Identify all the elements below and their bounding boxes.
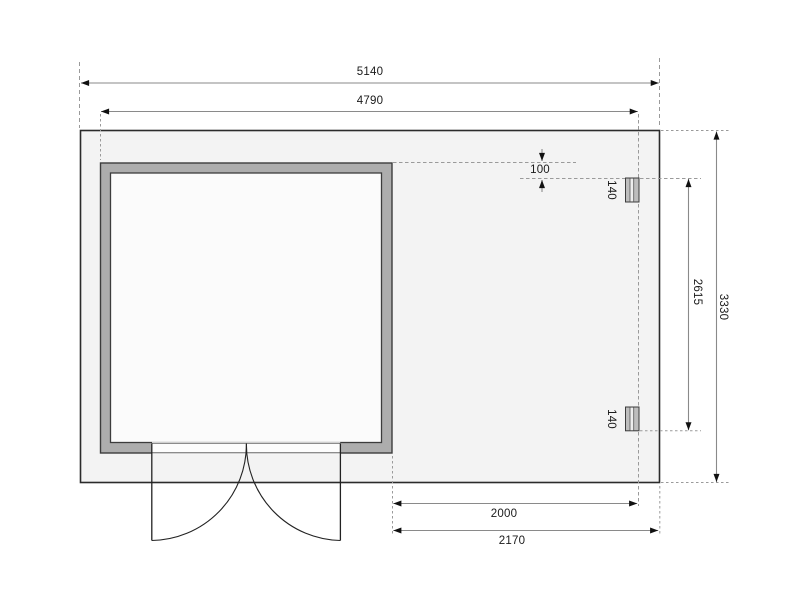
room-interior — [111, 173, 382, 443]
floor-plan-drawing — [0, 0, 800, 600]
dim-label-wall-post-offset: 100 — [530, 164, 550, 176]
cabin-room — [101, 163, 393, 454]
dim-label-post-bay-width: 2000 — [491, 508, 517, 520]
dim-label-annex-width: 2170 — [499, 535, 525, 547]
post-top-stripe — [630, 179, 634, 202]
dim-label-post-span: 2615 — [691, 279, 703, 305]
dim-label-total-width: 5140 — [357, 66, 383, 78]
dim-label-total-depth: 3330 — [717, 294, 729, 320]
post-bottom-stripe — [630, 408, 634, 431]
dim-label-house-width: 4790 — [357, 95, 383, 107]
dim-label-post-width-bottom: 140 — [605, 409, 617, 429]
dim-label-post-width-top: 140 — [605, 180, 617, 200]
floor-plan-canvas: 5140 4790 100 140 140 2615 3330 2000 217… — [0, 0, 800, 600]
